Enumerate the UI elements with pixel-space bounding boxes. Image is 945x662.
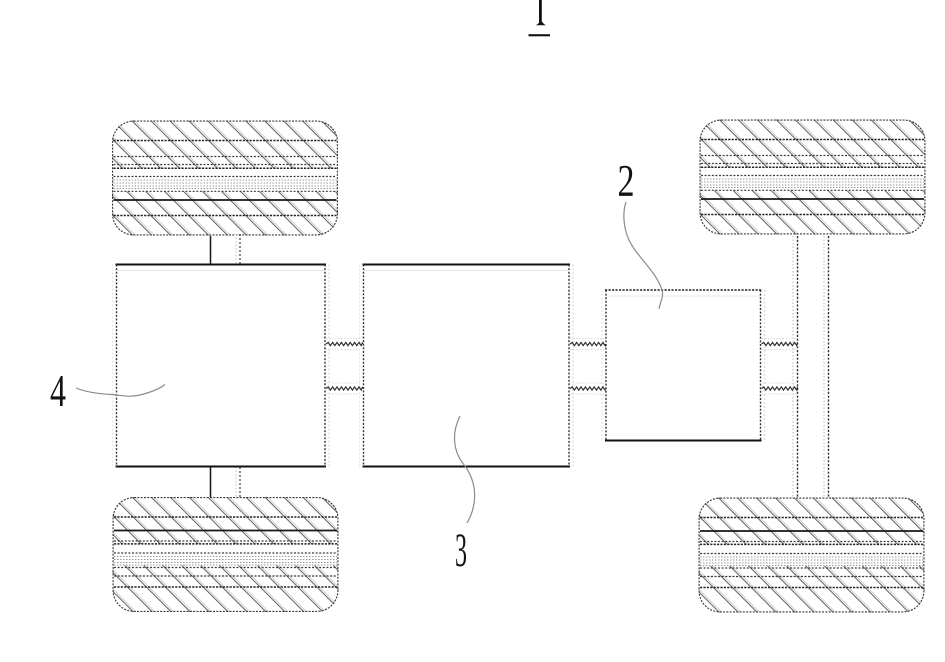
svg-text:4: 4 bbox=[50, 366, 66, 416]
svg-text:2: 2 bbox=[618, 156, 635, 206]
svg-text:3: 3 bbox=[455, 524, 467, 577]
